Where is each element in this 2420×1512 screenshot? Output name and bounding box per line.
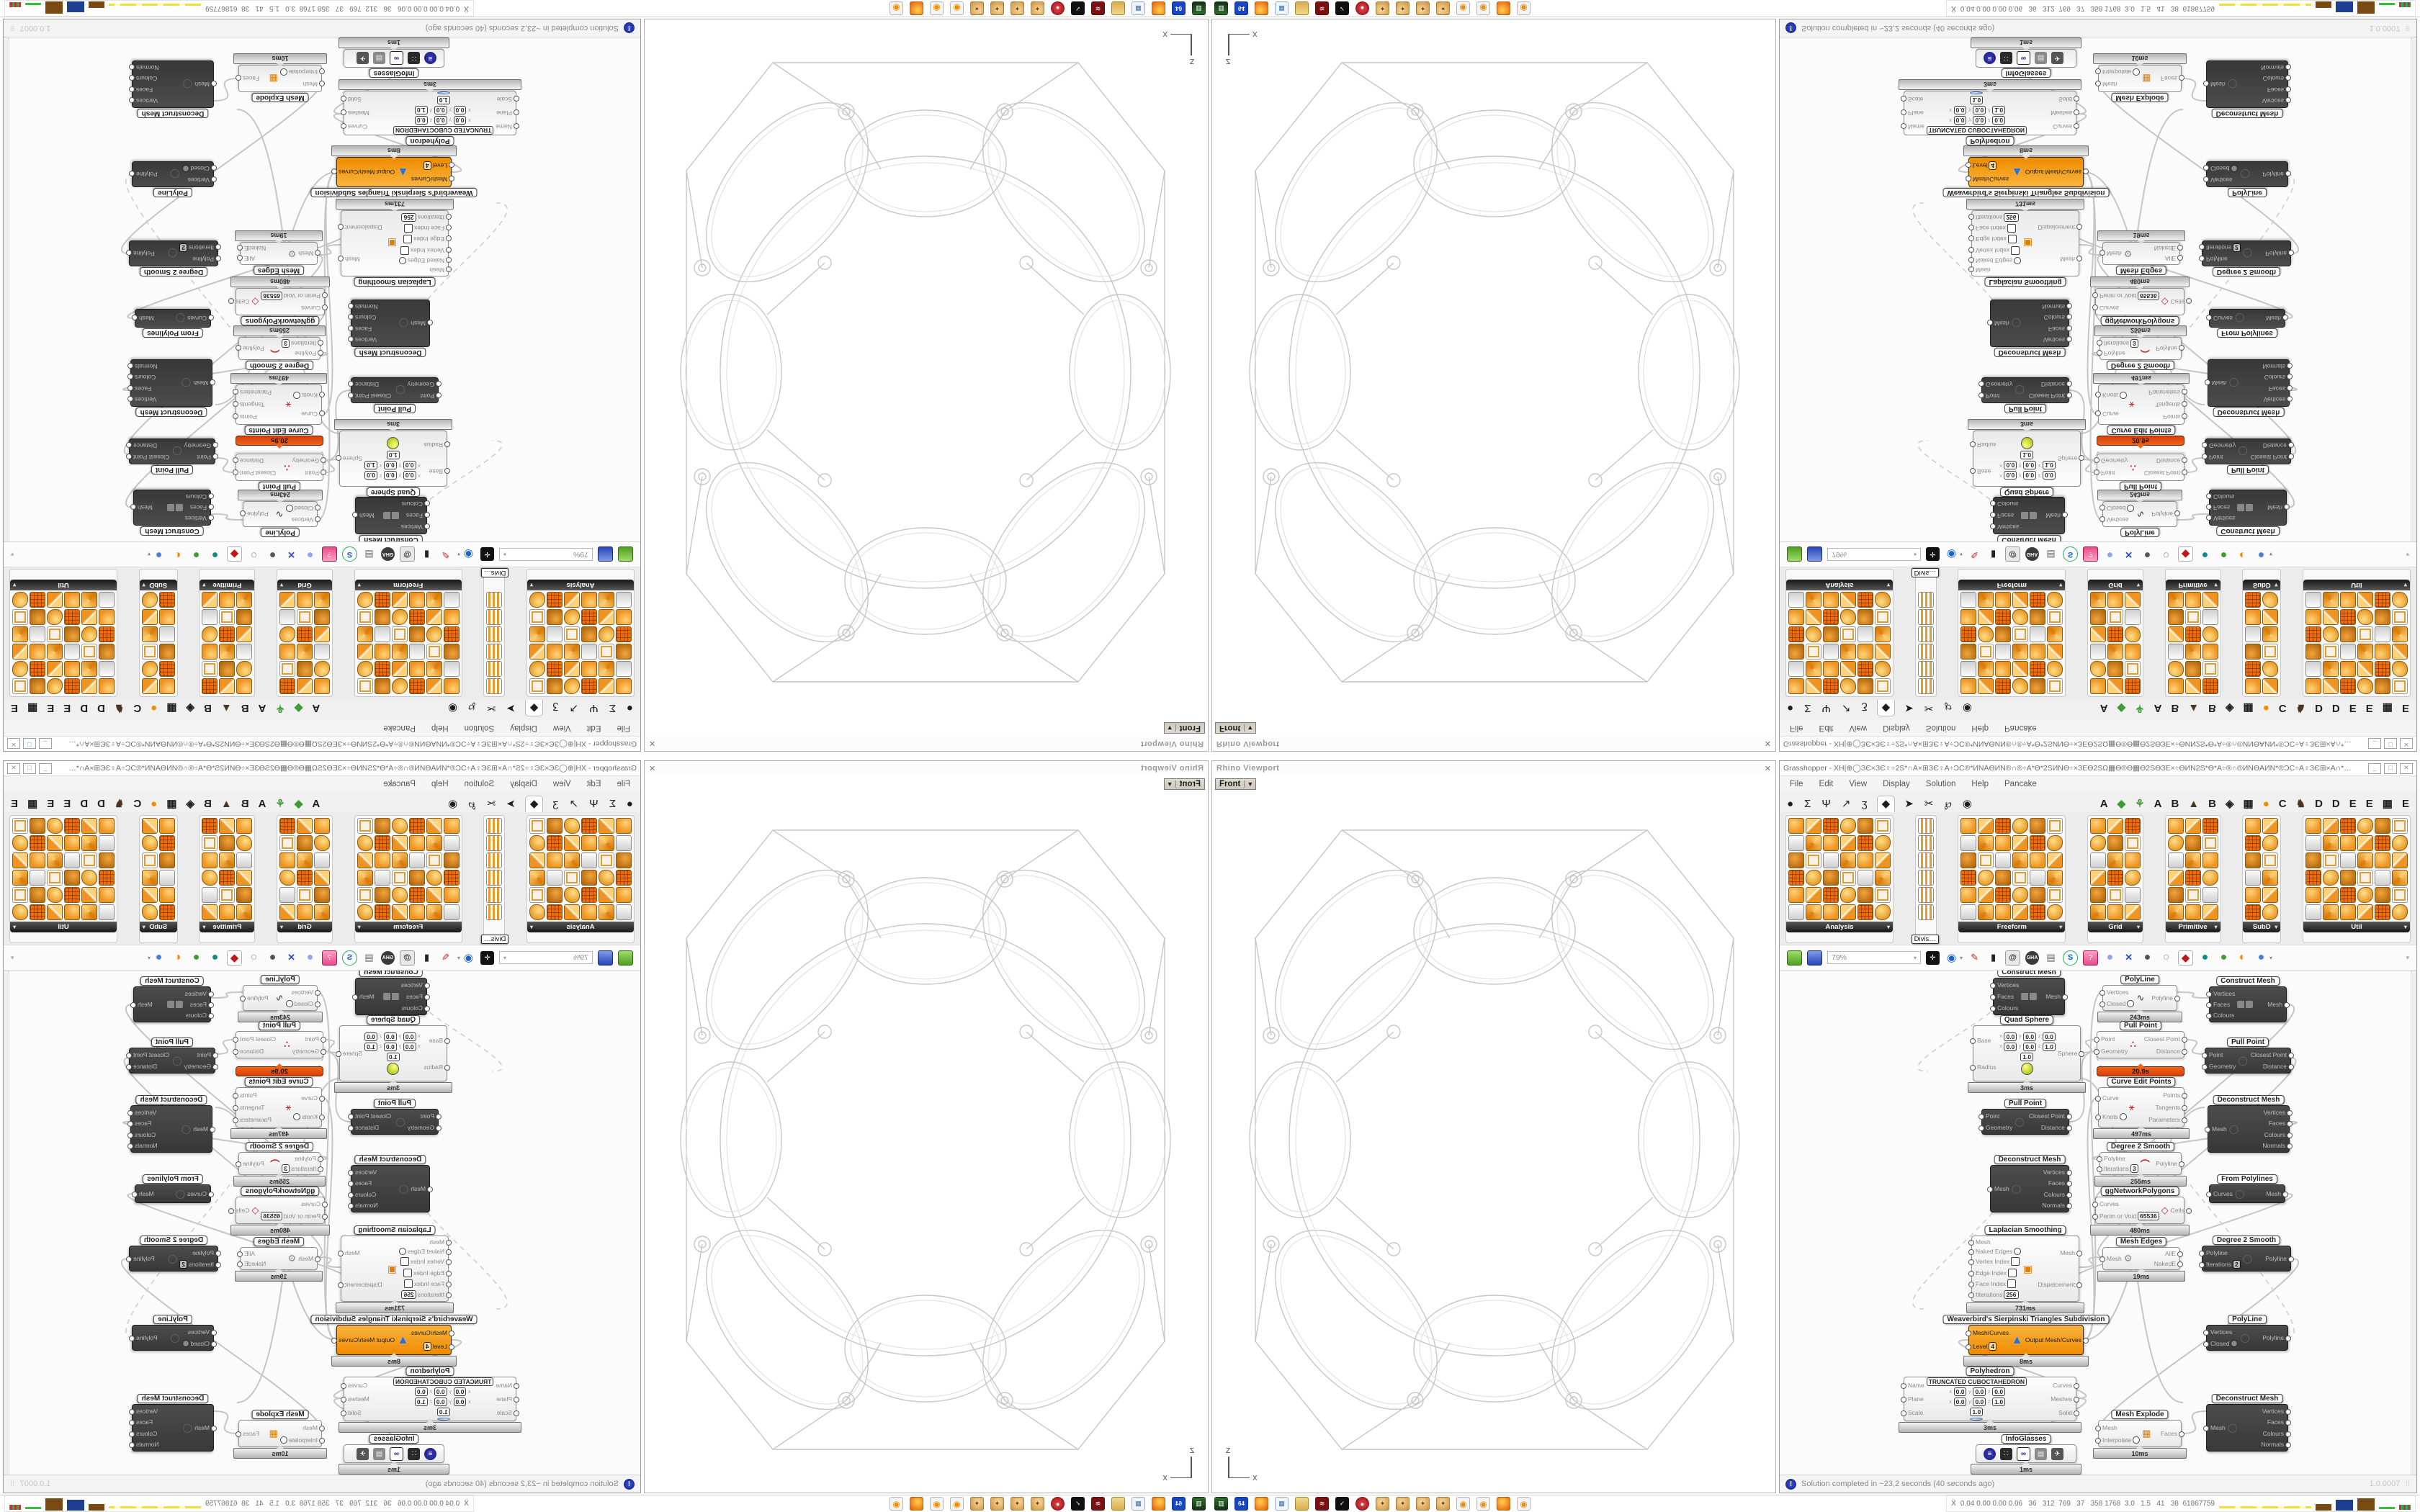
component-icon[interactable] [30,592,45,608]
component-icon[interactable] [486,818,502,834]
name-box[interactable]: TRUNCATED CUBOCTAHEDRON [393,1377,493,1386]
component-icon[interactable] [30,887,45,903]
plugin-tab-10[interactable]: C [132,796,143,812]
component-icon[interactable] [2323,626,2339,642]
console-app-icon[interactable]: ▥ [1214,1,1228,15]
node-deconstruct-mesh-r2[interactable]: Deconstruct MeshMesh◯VerticesFacesColour… [132,1404,214,1452]
component-icon[interactable] [2375,592,2390,608]
plugin-tab-6[interactable]: B [2207,796,2218,812]
component-icon[interactable] [581,626,597,642]
component-icon[interactable] [581,661,597,677]
value-box[interactable]: 3 [2130,1164,2138,1173]
node-port-point[interactable]: Point [1986,392,1999,400]
node-polyhedron[interactable]: PolyhedronNamePlaneScaleTRUNCATED CUBOCT… [344,1377,516,1421]
menu-item-view[interactable]: View [553,780,571,788]
toggle-circle-filled[interactable] [2231,165,2238,172]
node-port-normals[interactable]: Normals [135,1142,158,1149]
name-box[interactable]: TRUNCATED CUBOCTAHEDRON [1927,1377,2027,1386]
component-icon[interactable] [529,818,545,834]
plugin-tab-17[interactable]: E [9,796,19,812]
plugin-tab-9[interactable]: ● [149,700,158,716]
component-icon[interactable] [599,626,614,642]
sphere-wire-icon[interactable]: ○ [247,548,261,562]
category-tab-4[interactable]: ʒ [1860,700,1868,716]
component-icon[interactable] [2090,678,2106,694]
component-icon[interactable] [2107,887,2123,903]
component-icon[interactable] [2107,644,2123,660]
value-box[interactable]: 4 [423,1342,431,1351]
open-file-icon[interactable] [618,950,633,966]
component-icon[interactable] [2357,818,2373,834]
node-port-radius[interactable]: Radius [424,1063,443,1071]
node-port-perim-or-void[interactable]: Perim or Void65536 [261,1212,321,1220]
node-port-mesh[interactable]: Mesh [2210,81,2226,88]
folder-icon[interactable] [1111,1497,1125,1511]
node-port-normals[interactable]: Normals [355,303,378,310]
component-icon[interactable] [64,818,80,834]
component-icon[interactable] [426,835,442,851]
component-icon[interactable] [616,852,632,868]
node-port-vertices[interactable]: Vertices [355,336,377,343]
component-icon[interactable] [2245,818,2261,834]
node-port-distance[interactable]: Distance [2263,1063,2287,1070]
category-tab-1[interactable]: Σ [608,796,617,812]
node-port-polyline[interactable]: Polyline [2206,1249,2228,1256]
toggle-circle-filled[interactable] [182,1340,189,1347]
node-canvas[interactable]: Construct MeshVerticesFacesColoursMeshQu… [4,971,640,1475]
blender-icon[interactable]: ◉ [889,1,903,15]
category-tab-1[interactable]: Σ [608,700,617,716]
component-icon[interactable] [599,835,614,851]
component-icon[interactable] [1788,818,1804,834]
component-icon[interactable] [2340,852,2356,868]
zoom-extents-icon[interactable]: ✛ [1926,951,1940,965]
node-canvas[interactable]: Construct MeshVerticesFacesColoursMeshQu… [4,37,640,541]
node-port-itterations[interactable]: Itterations256 [401,213,444,222]
value-box[interactable]: 65536 [261,1212,282,1220]
component-icon[interactable] [2107,852,2123,868]
node-ggnetworkpolygons[interactable]: ggNetworkPolygonsCurvesPerim or Void6553… [2095,1197,2184,1224]
node-deconstruct-mesh-l[interactable]: Deconstruct MeshMesh◯VerticesFacesColour… [351,300,430,347]
component-icon[interactable] [2125,609,2141,625]
component-icon[interactable] [426,661,442,677]
node-port-point[interactable]: Point [2209,454,2223,461]
component-icon[interactable] [1995,835,2011,851]
component-icon[interactable] [564,852,580,868]
coord-box[interactable]: 0.0 [2023,462,2036,470]
component-icon[interactable] [81,904,97,920]
balloon-icon[interactable]: ● [303,548,317,562]
component-icon[interactable] [2262,678,2278,694]
coord-box[interactable]: 0.0 [434,116,447,125]
component-icon[interactable] [1960,626,1976,642]
component-icon[interactable] [47,592,63,608]
node-port-mesh[interactable]: Mesh [2210,1424,2226,1431]
canvas-scrollbar[interactable] [2411,971,2416,1475]
component-icon[interactable] [2392,818,2408,834]
plugin-tab-3[interactable]: A [257,700,268,716]
component-icon[interactable] [64,870,80,886]
value-box[interactable]: 256 [2004,1290,2018,1299]
component-icon[interactable] [599,609,614,625]
drawers-icon[interactable]: ▤ [2035,53,2047,65]
category-tab-3[interactable]: ↗ [1840,796,1852,812]
node-deconstruct-mesh-r1[interactable]: Deconstruct MeshMesh◯VerticesFacesColour… [130,1105,212,1153]
node-port-tangents[interactable]: Tangents [2156,1104,2181,1111]
node-port-base[interactable]: Base [1977,469,1991,476]
node-port-faces[interactable]: Faces [2048,325,2065,333]
component-icon[interactable] [159,609,175,625]
node-port-solid[interactable]: Solid [2058,1409,2072,1416]
component-icon[interactable] [1840,818,1856,834]
component-icon[interactable] [30,852,45,868]
firefox-icon[interactable] [910,1497,923,1511]
component-icon[interactable] [444,904,460,920]
node-port-itterations[interactable]: Itterations256 [401,1290,444,1299]
node-port-iterations[interactable]: Iterations3 [2104,1164,2138,1173]
value-box[interactable]: 256 [401,213,416,222]
component-icon[interactable] [2047,852,2063,868]
node-deconstruct-mesh-r2[interactable]: Deconstruct MeshMesh◯VerticesFacesColour… [132,60,214,108]
component-icon[interactable] [2305,852,2321,868]
component-icon[interactable] [297,592,313,608]
component-icon[interactable] [529,626,545,642]
plugin-tab-2[interactable]: ⚘ [274,796,286,812]
component-icon[interactable] [581,835,597,851]
node-from-polylines[interactable]: From PolylinesCurves◯Mesh [2209,1184,2285,1203]
component-icon[interactable] [375,644,390,660]
component-icon[interactable] [64,835,80,851]
node-port-mesh[interactable]: Mesh [2107,250,2122,257]
node-port-mesh-curves[interactable]: Mesh/Curves [411,176,447,183]
component-icon[interactable] [64,678,80,694]
viewport-view-button[interactable]: Front ▼ [1164,722,1205,734]
node-port-name[interactable]: Name [496,123,512,130]
component-icon[interactable] [1978,852,1994,868]
node-port-face-index[interactable]: Face Index [1976,224,2016,233]
component-icon[interactable] [357,887,373,903]
sphere-dark-icon[interactable]: ● [2141,548,2154,562]
menu-item-solution[interactable]: Solution [465,724,495,732]
plugin-tab-11[interactable]: ♞ [113,700,125,716]
component-icon[interactable] [564,626,580,642]
node-degree-2-smooth-r[interactable]: Degree 2 SmoothPolylineIterations2◯Polyl… [2202,1246,2291,1272]
component-icon[interactable] [547,904,563,920]
node-port-points[interactable]: Points [240,1092,257,1099]
component-icon[interactable] [81,887,97,903]
red-gem-icon[interactable]: ◆ [227,950,242,966]
barrel-icon[interactable]: ▮ [1986,548,2000,562]
node-port-curves[interactable]: Curves [2099,1200,2119,1207]
component-icon[interactable] [202,678,218,694]
component-icon[interactable] [1806,870,1821,886]
node-port-vertex-index[interactable]: Vertex Index [400,1257,444,1266]
value-box[interactable]: 1.0 [2020,451,2033,460]
component-icon[interactable] [409,835,425,851]
category-tab-6[interactable]: ➤ [1903,700,1915,716]
category-tab-4[interactable]: ʒ [551,796,560,812]
node-port-solid[interactable]: Solid [348,1409,362,1416]
component-icon[interactable] [2305,626,2321,642]
component-icon[interactable] [219,609,235,625]
node-port-mesh[interactable]: Mesh [2212,1125,2227,1133]
coord-box[interactable]: 0.0 [1954,1387,1967,1396]
component-icon[interactable] [2107,818,2123,834]
node-port-polyline[interactable]: Polyline [2265,1255,2287,1262]
component-icon[interactable] [2202,887,2218,903]
component-icon[interactable] [426,818,442,834]
component-icon[interactable] [2202,870,2218,886]
node-port-face-index[interactable]: Face Index [404,1279,444,1288]
component-icon[interactable] [1995,818,2011,834]
component-icon[interactable] [616,870,632,886]
node-port-mesh[interactable]: Mesh [411,1185,426,1192]
node-port-polyline[interactable]: Polyline [2104,351,2125,358]
node-port-vertices[interactable]: Vertices [188,1328,210,1336]
component-icon[interactable] [64,887,80,903]
component-icon[interactable] [47,661,63,677]
node-from-polylines[interactable]: From PolylinesCurves◯Mesh [135,309,211,328]
palette-group-label[interactable]: Primitive▾ [200,580,254,590]
node-port-colours[interactable]: Colours [186,1012,207,1019]
palette-group-label[interactable]: Grid▾ [2088,580,2143,590]
coord-box[interactable]: 0.0 [454,106,467,114]
node-port-normals[interactable]: Normals [2261,64,2284,71]
component-icon[interactable] [547,661,563,677]
component-icon[interactable] [2202,835,2218,851]
node-mesh-explode[interactable]: Mesh ExplodeMeshInterpolate▦Faces10ms [238,65,322,92]
viewport-view-button[interactable]: Front ▼ [1215,722,1256,734]
component-icon[interactable] [12,592,28,608]
node-port-mesh[interactable]: Mesh [1994,320,2009,327]
node-port-perim-or-void[interactable]: Perim or Void65536 [261,292,321,300]
node-port-mesh[interactable]: Mesh [345,1249,360,1256]
node-port-edge-index[interactable]: Edge Index [403,1269,444,1277]
zoom-select[interactable]: 79%▾ [1827,548,1921,561]
component-icon[interactable] [581,818,597,834]
component-icon[interactable] [357,835,373,851]
component-icon[interactable] [47,818,63,834]
palette-app-icon[interactable]: ✦ [970,1,984,15]
coord-box[interactable]: 0.0 [454,1387,467,1396]
node-port-faces[interactable]: Faces [136,1418,153,1426]
component-icon[interactable] [2168,609,2184,625]
component-icon[interactable] [2245,592,2261,608]
component-icon[interactable] [547,818,563,834]
node-port-base[interactable]: Base [429,469,443,476]
value-box[interactable]: 4 [1989,161,1996,170]
node-port-geometry[interactable]: Geometry [292,1048,319,1055]
component-icon[interactable] [375,887,390,903]
node-quad-sphere[interactable]: Quad SphereBaseRadiusx0.0y0.0z0.0x0.0y0.… [1973,431,2081,487]
node-port-point[interactable]: Point [197,1051,211,1058]
node-port-vertices[interactable]: Vertices [2210,1328,2232,1336]
category-tab-6[interactable]: ➤ [1903,796,1915,812]
coord-box[interactable]: 0.0 [403,1032,416,1041]
category-tab-9[interactable]: ◉ [447,796,459,812]
node-pull-point-timer[interactable]: 20.9s [2097,436,2184,446]
component-icon[interactable] [444,592,460,608]
plugin-tab-2[interactable]: ⚘ [274,700,286,716]
component-icon[interactable] [2168,644,2184,660]
value-box[interactable]: 3 [2130,340,2138,348]
palette-group-label[interactable]: Analysis▾ [527,922,634,932]
node-port-alle[interactable]: AllE [2165,255,2176,262]
component-icon[interactable] [2262,644,2278,660]
component-icon[interactable] [30,609,45,625]
node-port-colours[interactable]: Colours [2264,374,2285,381]
component-icon[interactable] [30,626,45,642]
zoom-extents-icon[interactable]: ✛ [1926,548,1940,562]
green-ball-icon[interactable]: ● [2217,548,2231,562]
component-icon[interactable] [1840,592,1856,608]
firefox-icon[interactable] [1152,1,1165,15]
component-icon[interactable] [142,887,158,903]
component-icon[interactable] [2392,835,2408,851]
document-flag-icon[interactable]: ▤ [2044,548,2058,562]
maximize-button[interactable]: □ [2384,763,2397,774]
component-icon[interactable] [1995,870,2011,886]
component-icon[interactable] [279,626,295,642]
orange-ball-icon[interactable]: ◐ [2236,548,2249,562]
sphere-wire-icon[interactable]: ○ [2159,951,2173,965]
node-port-interpolate[interactable]: Interpolate [280,69,318,76]
component-icon[interactable] [314,835,330,851]
component-icon[interactable] [547,678,563,694]
component-icon[interactable] [142,592,158,608]
open-file-icon[interactable] [618,547,633,562]
component-icon[interactable] [99,852,115,868]
node-port-curves[interactable]: Curves [187,1190,207,1197]
node-port-faces[interactable]: Faces [355,1179,372,1187]
node-port-polyline[interactable]: Polyline [2151,994,2173,1002]
component-icon[interactable] [1918,678,1934,694]
component-icon[interactable] [529,592,545,608]
component-icon[interactable] [486,626,502,642]
component-icon[interactable] [1875,887,1891,903]
component-icon[interactable] [314,644,330,660]
coord-box[interactable]: 0.0 [1992,1387,2005,1396]
component-icon[interactable] [1806,818,1821,834]
node-mesh-explode[interactable]: Mesh ExplodeMeshInterpolate▦Faces10ms [2098,65,2182,92]
toggle-circle[interactable] [2133,1436,2140,1444]
component-icon[interactable] [1875,661,1891,677]
node-port-mesh[interactable]: Mesh [1976,266,1991,274]
component-icon[interactable] [599,904,614,920]
category-tab-6[interactable]: ➤ [505,700,517,716]
node-port-mesh[interactable]: Mesh [411,320,426,327]
node-port-name[interactable]: Name [496,1382,512,1389]
blender-icon[interactable]: ◉ [950,1,964,15]
palette-app-icon[interactable]: ✦ [1031,1,1044,15]
component-icon[interactable] [2340,835,2356,851]
node-pull-point-r[interactable]: Pull PointPointGeometry◯Closest PointDis… [129,438,215,464]
plugin-tab-11[interactable]: ♞ [2295,796,2307,812]
component-icon[interactable] [2357,644,2373,660]
node-port-mesh[interactable]: Mesh [1994,1185,2009,1192]
calculator-icon[interactable]: ▦ [1131,1,1145,15]
component-icon[interactable] [202,835,218,851]
node-pull-point-l[interactable]: Pull PointPointGeometry◯Closest PointDis… [351,1109,439,1135]
node-port-mesh[interactable]: Mesh [429,266,444,274]
plugin-tab-4[interactable]: B [240,700,251,716]
node-port-name[interactable]: Name [1908,123,1924,130]
node-port-vertex-index[interactable]: Vertex Index [1976,1257,2020,1266]
node-port-polyline[interactable]: Polyline [2206,256,2228,264]
component-icon[interactable] [2323,835,2339,851]
component-icon[interactable] [2375,609,2390,625]
zoom-select[interactable]: 79%▾ [1827,951,1921,964]
node-port-geometry[interactable]: Geometry [2209,1063,2236,1070]
menu-item-edit[interactable]: Edit [587,780,601,788]
component-icon[interactable] [2375,661,2390,677]
plugin-tab-1[interactable]: ◆ [293,700,305,716]
component-icon[interactable] [297,644,313,660]
checkmark-app-icon[interactable]: ✓ [1071,1497,1085,1511]
component-icon[interactable] [486,904,502,920]
dots-grid-icon[interactable]: ∷ [2000,53,2012,65]
component-icon[interactable] [444,818,460,834]
node-port-mesh[interactable]: Mesh [359,993,375,1000]
preview-eye-icon[interactable]: ◉ [462,548,475,562]
plugin-tab-0[interactable]: A [310,796,321,812]
component-icon[interactable] [1960,904,1976,920]
node-curve-edit-points[interactable]: Curve Edit PointsCurveKnots⚹PointsTangen… [236,384,322,425]
toggle-circle[interactable] [280,69,287,76]
category-tab-4[interactable]: ʒ [1860,796,1868,812]
plugin-tab-0[interactable]: A [310,700,321,716]
coord-box[interactable]: 0.0 [2023,1032,2036,1041]
node-port-vertices[interactable]: Vertices [2107,989,2128,996]
node-mesh-explode[interactable]: Mesh ExplodeMeshInterpolate▦Faces10ms [2098,1420,2182,1447]
node-polyline-r[interactable]: PolyLineVerticesClosed◯Polyline [2206,1325,2288,1351]
preview-eye-icon[interactable]: ◉ [1945,548,1958,562]
value-box[interactable]: 1.0 [1970,1408,1983,1416]
component-icon[interactable] [444,644,460,660]
poster-app-icon[interactable]: ≋ [1091,1497,1105,1511]
red-gem-icon[interactable]: ◆ [2178,547,2193,562]
node-pull-point-timer[interactable]: 20.9s [236,1066,323,1076]
node-port-vertices[interactable]: Vertices [2210,176,2232,184]
plugin-tab-4[interactable]: B [2169,796,2180,812]
dots-grid-icon[interactable]: ∷ [2000,1448,2012,1460]
coord-box[interactable]: 0.0 [434,1387,447,1396]
checkmark-app-icon[interactable]: ✓ [1335,1,1349,15]
node-quad-sphere[interactable]: Quad SphereBaseRadiusx0.0y0.0z0.0x0.0y0.… [339,1025,447,1081]
component-icon[interactable] [2047,592,2063,608]
component-icon[interactable] [2090,852,2106,868]
component-icon[interactable] [581,852,597,868]
resize-grip[interactable]: ⠿ [9,24,15,32]
component-icon[interactable] [547,644,563,660]
component-icon[interactable] [375,626,390,642]
coord-box[interactable]: 0.0 [415,1387,428,1396]
node-port-vertices[interactable]: Vertices [2213,990,2235,997]
component-icon[interactable] [142,626,158,642]
node-port-naked-edges[interactable]: Naked Edges [399,257,444,264]
node-polyline-r[interactable]: PolyLineVerticesClosed◯Polyline [2206,161,2288,187]
component-icon[interactable] [142,852,158,868]
node-port-edge-index[interactable]: Edge Index [403,235,444,243]
node-port-mesh[interactable]: Mesh [2060,1249,2075,1256]
goggles-icon[interactable]: ∞ [2017,1447,2030,1461]
node-port-geometry[interactable]: Geometry [184,1063,211,1070]
component-icon[interactable] [2245,626,2261,642]
component-icon[interactable] [314,818,330,834]
menu-item-help[interactable]: Help [1971,780,1989,788]
coord-box[interactable]: 0.0 [2023,472,2036,480]
component-icon[interactable] [219,678,235,694]
